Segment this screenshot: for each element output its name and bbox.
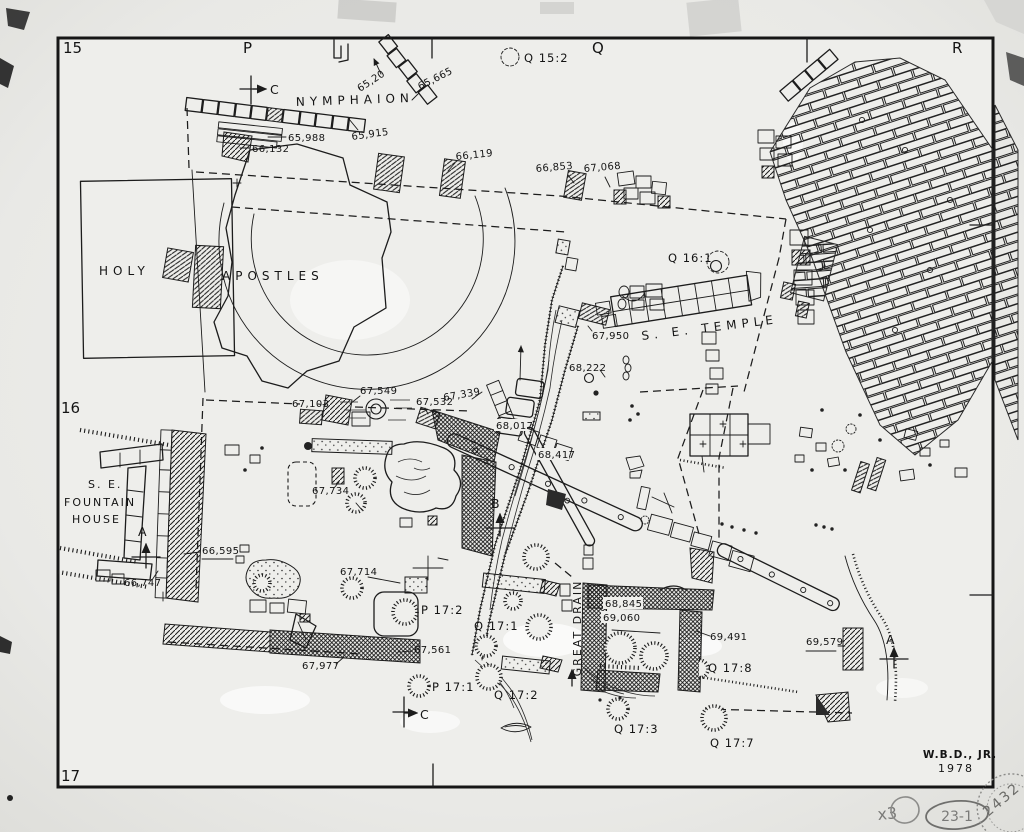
negative-number: 23-1 <box>941 809 973 825</box>
elev-67-734: 67,734 <box>312 486 349 497</box>
elev-66-747: 66,747 <box>124 578 161 589</box>
well-label-p17-1: P 17:1 <box>432 680 474 694</box>
elev-68-845-group: 68,845 <box>603 597 643 610</box>
grid-label-15: 15 <box>63 39 82 57</box>
section-label-a-right: A <box>886 632 895 647</box>
section-label-c-bottom: C <box>420 707 429 722</box>
elev-68-017-group: 68,017 <box>494 419 533 432</box>
drafting-year: 1978 <box>938 762 974 775</box>
fountain-house-label-1: S. E. <box>88 478 122 491</box>
grid-label-r: R <box>952 39 962 57</box>
holy-label: HOLY <box>99 264 150 278</box>
grid-label-17: 17 <box>61 767 80 785</box>
well-label-q17-7: Q 17:7 <box>710 736 755 750</box>
well-label-q17-8: Q 17:8 <box>708 661 753 675</box>
elev-67-977: 67,977 <box>302 661 339 672</box>
elev-68-417-group: 68,417 <box>536 448 575 461</box>
section-label-a-left: A <box>138 524 147 539</box>
elev-67-549: 67,549 <box>360 386 397 397</box>
section-label-b: B <box>491 496 500 511</box>
scale-note: x3 <box>877 803 898 824</box>
apostles-label: APOSTLES <box>222 269 324 283</box>
great-drain-label: GREAT DRAIN <box>571 580 584 677</box>
well-label-p17-2: P 17:2 <box>421 603 463 617</box>
plan-drawing: 15 P Q R 16 17 <box>0 0 1024 832</box>
site-plan-photo: 15 P Q R 16 17 <box>0 0 1024 832</box>
well-label-q15-2: Q 15:2 <box>524 51 569 65</box>
grid-label-16: 16 <box>61 399 80 417</box>
elev-69-060-group: 69,060 <box>601 611 641 624</box>
drafter-initials: W.B.D., JR. <box>923 749 997 761</box>
elev-67-714: 67,714 <box>340 567 377 578</box>
well-label-q17-3: Q 17:3 <box>614 722 659 736</box>
elev-67-561: 67,561 <box>414 645 451 656</box>
well-label-q17-2: Q 17:2 <box>494 688 539 702</box>
section-label-c-top: C <box>270 82 279 97</box>
elev-68-017: 68,017 <box>496 421 533 432</box>
elev-65-988: 65,988 <box>288 133 325 144</box>
elev-66-595: 66,595 <box>202 546 239 557</box>
elev-69-491: 69,491 <box>710 632 747 643</box>
grid-label-q: Q <box>592 39 604 57</box>
well-label-q16-1: Q 16:1 <box>668 251 713 265</box>
elev-68-222: 68,222 <box>569 363 606 374</box>
fountain-house-label-3: HOUSE <box>72 513 121 526</box>
elev-68-845: 68,845 <box>605 599 642 610</box>
well-label-q17-1: Q 17:1 <box>474 619 519 633</box>
elev-66-132: 66,132 <box>252 144 289 155</box>
elev-68-417: 68,417 <box>538 450 575 461</box>
fountain-house-label-2: FOUNTAIN <box>64 496 136 509</box>
elev-67-950: 67,950 <box>592 331 629 342</box>
elev-69-060: 69,060 <box>603 613 640 624</box>
grid-label-p: P <box>243 39 252 57</box>
great-drain-label-group: GREAT DRAIN <box>571 580 584 686</box>
